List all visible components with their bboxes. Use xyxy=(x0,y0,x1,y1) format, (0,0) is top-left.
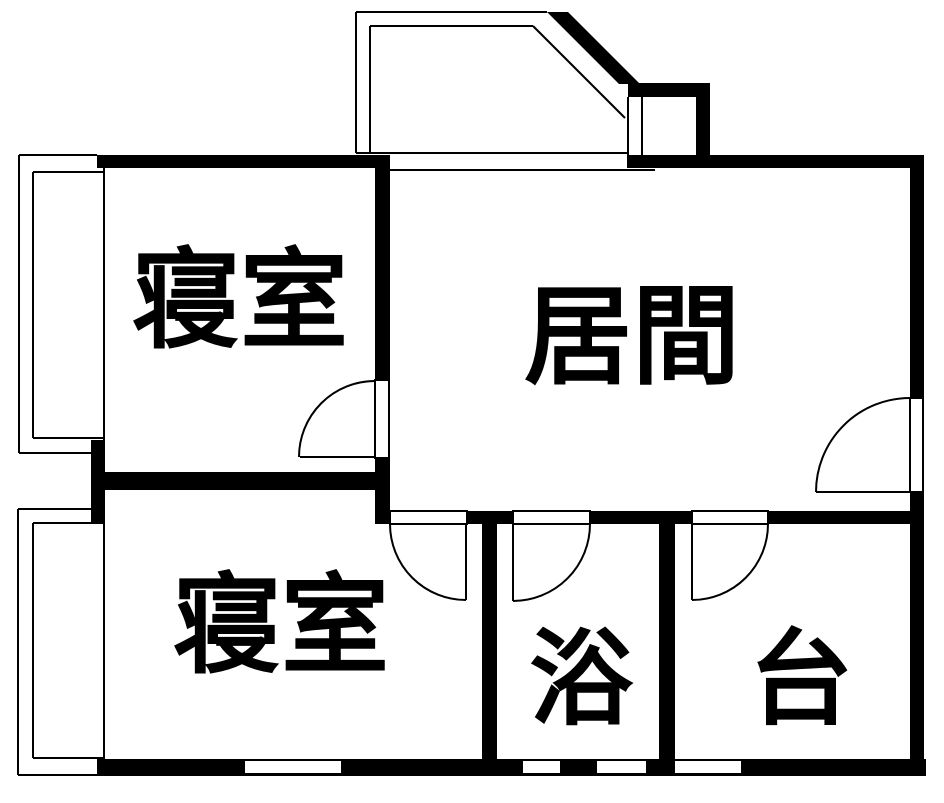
wall-bedroom1-top xyxy=(97,155,390,168)
opening-bath-door xyxy=(513,511,590,524)
living-door xyxy=(816,398,910,492)
wall-living-top xyxy=(627,155,924,168)
wall-bottom xyxy=(97,759,926,776)
window-bedroom2-bottom xyxy=(245,761,341,773)
wall-right-upper xyxy=(910,155,924,398)
wall-bath-kitchen xyxy=(659,524,675,759)
wall-entry-top xyxy=(628,83,710,97)
wall-bedroom2-bath xyxy=(482,524,497,759)
wall-right-lower xyxy=(910,492,924,776)
entry-porch xyxy=(628,97,642,155)
wall-entry-right xyxy=(696,97,710,155)
left-bay-upper xyxy=(19,155,104,453)
opening-living-door xyxy=(910,398,923,492)
opening-kitchen-door xyxy=(692,511,768,524)
opening-bedroom2-door xyxy=(390,511,467,524)
wall-hall-seg3 xyxy=(768,511,910,524)
opening-bedroom1-door xyxy=(375,380,389,458)
bedroom2-door-arc xyxy=(390,524,466,600)
label-bath: 浴 xyxy=(529,622,634,738)
bath-door xyxy=(513,524,590,601)
bedroom1-door-arc xyxy=(299,381,375,457)
label-kitchen: 台 xyxy=(749,622,853,738)
bath-door-arc xyxy=(513,524,590,601)
window-kitchen-bottom xyxy=(675,761,741,773)
wall-hall-seg1 xyxy=(467,511,513,524)
window-bath-bottom-1 xyxy=(523,761,560,773)
label-bedroom-top: 寝室 xyxy=(132,240,348,361)
door-openings xyxy=(375,380,923,524)
wall-entry-diagonal xyxy=(547,12,640,84)
floor-plan: 寝室 居間 寝室 浴 台 xyxy=(0,0,944,803)
living-window xyxy=(382,153,655,170)
label-living-room: 居間 xyxy=(524,276,740,397)
kitchen-door xyxy=(692,524,768,600)
bedroom1-door xyxy=(299,381,375,457)
wall-bedroom1-living-upper xyxy=(375,168,390,380)
living-door-arc xyxy=(816,398,910,492)
label-bedroom-bottom: 寝室 xyxy=(173,565,389,686)
wall-hall-seg2 xyxy=(590,511,692,524)
kitchen-door-arc xyxy=(692,524,768,600)
wall-bedroom1-living-lower xyxy=(375,458,390,524)
left-bay-lower xyxy=(18,509,104,775)
wall-bedroom-divider xyxy=(92,472,390,490)
window-bath-bottom-2 xyxy=(597,761,646,773)
bedroom2-door xyxy=(390,524,466,600)
